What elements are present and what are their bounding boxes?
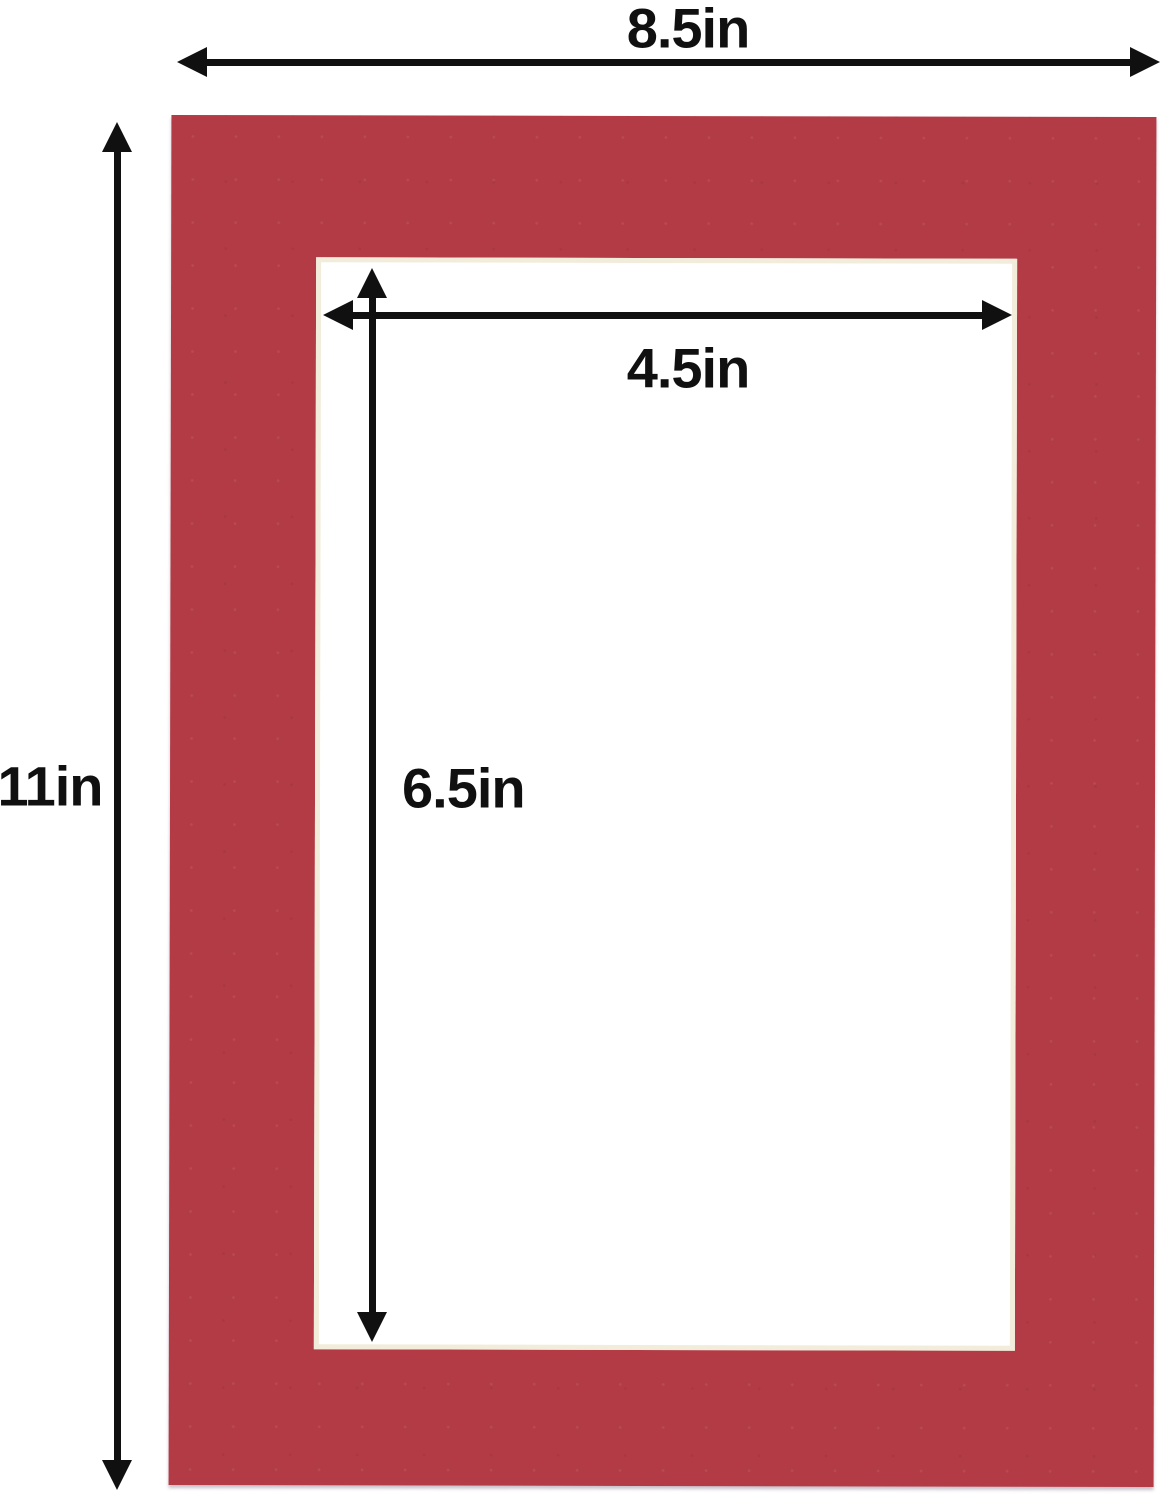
opening-height-label: 6.5in xyxy=(402,756,525,821)
arrowhead-down-icon xyxy=(357,1312,387,1342)
dimension-line xyxy=(114,148,121,1464)
arrowhead-up-icon xyxy=(102,122,132,152)
opening-width-label: 4.5in xyxy=(627,336,750,401)
dimension-line xyxy=(369,294,376,1316)
mat-diagram: 8.5in 11in 4.5in 6.5in xyxy=(0,0,1168,1500)
arrowhead-left-icon xyxy=(323,300,353,330)
arrowhead-down-icon xyxy=(102,1460,132,1490)
outer-height-label: 11in xyxy=(0,754,102,819)
dimension-line xyxy=(348,312,986,319)
arrowhead-right-icon xyxy=(1130,47,1160,77)
arrowhead-right-icon xyxy=(982,300,1012,330)
arrowhead-left-icon xyxy=(177,47,207,77)
arrowhead-up-icon xyxy=(357,268,387,298)
outer-width-label: 8.5in xyxy=(627,0,750,61)
